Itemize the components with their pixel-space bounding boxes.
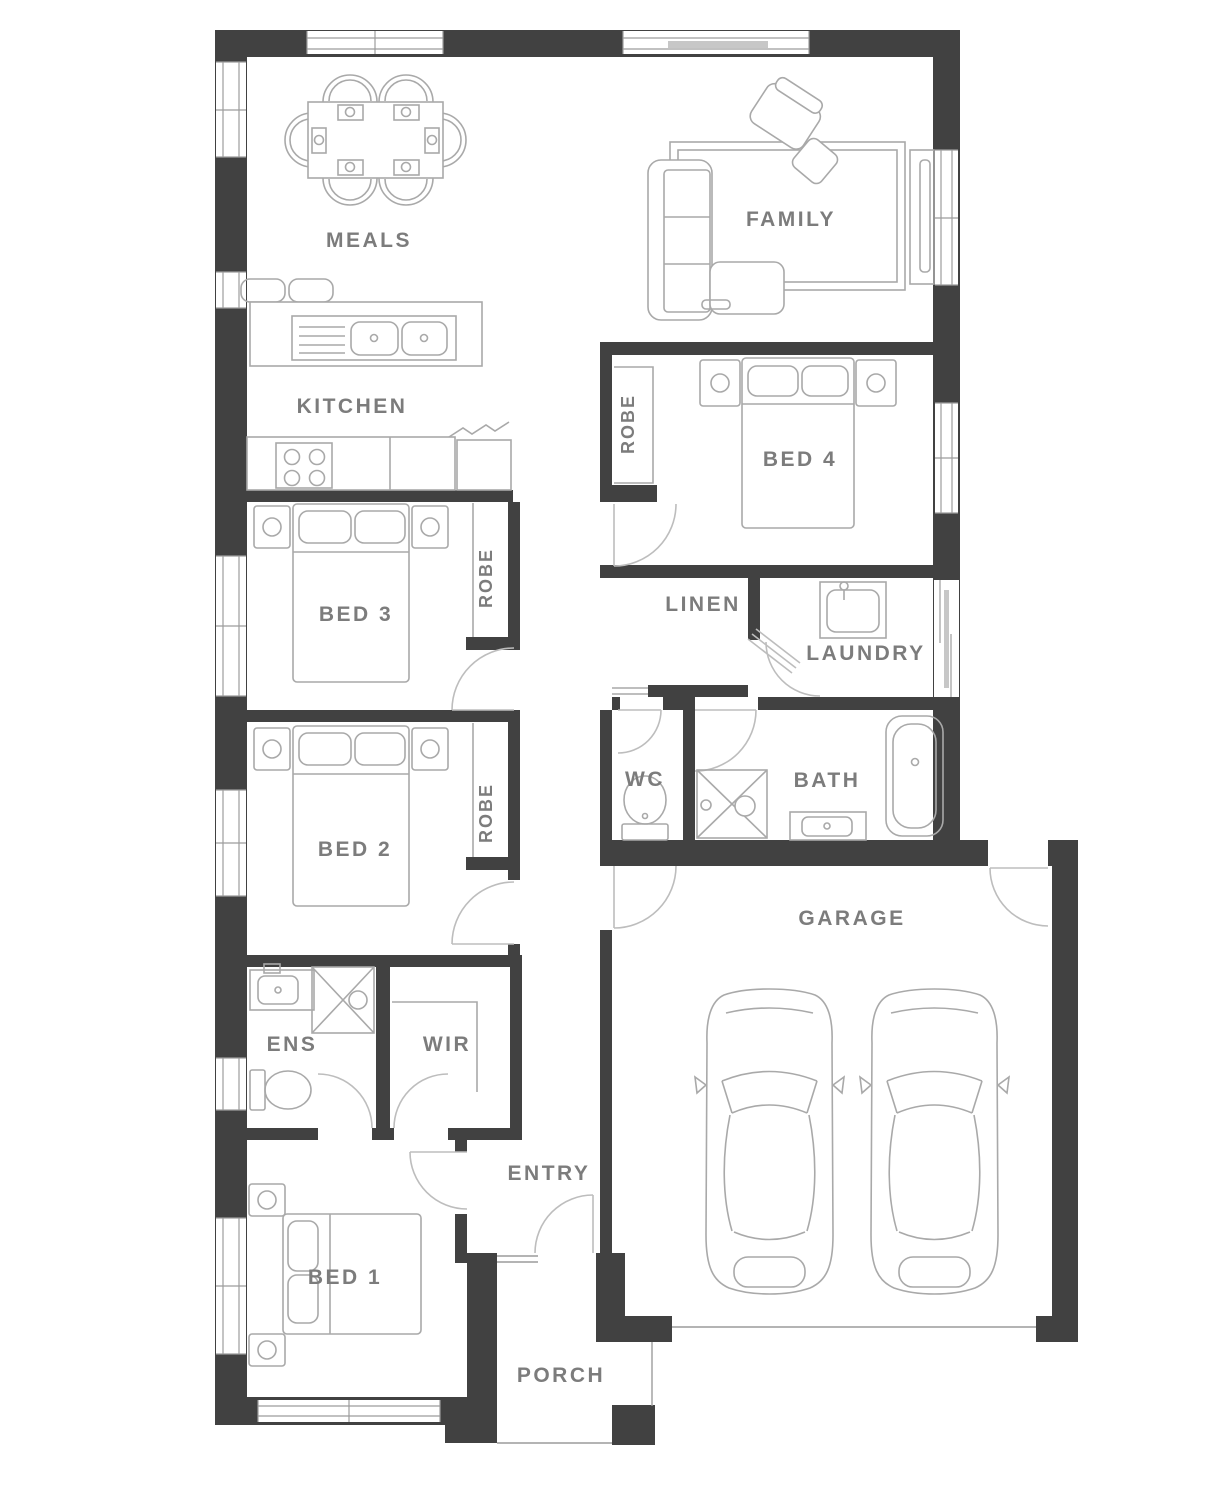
bed4-furniture — [614, 358, 896, 528]
bedside-table — [254, 728, 290, 770]
vanity — [790, 812, 866, 840]
window-top-family — [623, 31, 809, 54]
door-bed1 — [410, 1152, 467, 1209]
wall-robe2-bottom — [466, 857, 520, 870]
wall-bed1-top-a — [247, 1128, 318, 1140]
wall-bed3-bed2 — [215, 710, 520, 722]
door-bath — [695, 710, 756, 771]
bed — [742, 358, 854, 528]
door-wir — [394, 1074, 448, 1128]
ens-toilet — [250, 1070, 311, 1110]
wall-hall-left-c — [508, 944, 520, 967]
window-meals — [216, 62, 246, 157]
car-icon — [695, 989, 844, 1294]
bedside-table — [254, 506, 290, 548]
door-front — [497, 1195, 593, 1262]
sliding-door-laundry — [934, 580, 959, 697]
stool — [241, 279, 285, 302]
wall-linen-bottom — [648, 685, 748, 697]
sofa — [648, 160, 784, 320]
wall-garage-bl-h — [596, 1316, 672, 1342]
wall-ens-wir-div — [376, 967, 390, 1128]
room-label-wc: WC — [625, 768, 665, 791]
room-label-bed4: BED 4 — [763, 448, 837, 471]
door-wc — [618, 710, 661, 753]
door-garage-internal — [614, 866, 676, 928]
room-label-ens: ENS — [267, 1033, 318, 1056]
bedside-table — [412, 728, 448, 770]
room-label-bath: BATH — [794, 769, 861, 792]
room-label-meals: MEALS — [326, 229, 412, 252]
window-family-side — [935, 150, 958, 285]
door-bed3 — [452, 648, 514, 710]
bedside-table — [700, 360, 740, 406]
shower — [697, 770, 767, 838]
pantry-scribble — [449, 422, 509, 437]
door-bed4 — [614, 504, 676, 566]
floor-plan-svg: MEALS FAMILY KITCHEN ROBE BED 4 BED 3 RO… — [0, 0, 1220, 1500]
wall-kitchen-bed3 — [215, 490, 513, 502]
ens-vanity — [250, 964, 314, 1010]
bedside-table — [412, 506, 448, 548]
window-bed1-bottom — [258, 1400, 440, 1422]
wall-hall-left-b — [508, 712, 520, 880]
room-label-robe-bed3: ROBE — [476, 548, 496, 608]
room-label-porch: PORCH — [517, 1364, 605, 1387]
wall-hall-left-a — [508, 502, 520, 648]
wall-hall-right-b — [600, 710, 612, 862]
window-bed3 — [216, 556, 246, 696]
wall-bed1-right-b — [455, 1214, 467, 1263]
wall-bed1-top-b — [372, 1128, 394, 1140]
window-bed1-side — [216, 1218, 246, 1354]
room-label-wir: WIR — [423, 1033, 471, 1056]
wall-hall-right-c — [600, 930, 612, 1253]
wall-hall-right-a — [600, 342, 612, 502]
dining-chair — [379, 178, 433, 205]
wall-laundry-bath — [758, 697, 933, 710]
bedside-table — [856, 360, 896, 406]
floor-plan-page: MEALS FAMILY KITCHEN ROBE BED 4 BED 3 RO… — [0, 0, 1220, 1500]
room-label-linen: LINEN — [665, 593, 741, 616]
room-label-kitchen: KITCHEN — [297, 395, 408, 418]
wall-garage-br — [1036, 1316, 1078, 1342]
kitchen-island — [241, 279, 482, 366]
wall-bed1-right-a — [455, 1140, 467, 1152]
wall-bed4-linen — [600, 565, 960, 578]
dining-setting — [285, 75, 466, 205]
room-label-entry: ENTRY — [508, 1162, 591, 1185]
wall-bed2-ens — [215, 955, 522, 967]
tv-unit — [910, 150, 934, 284]
bed — [293, 726, 409, 906]
bench — [247, 437, 455, 490]
window-bed2 — [216, 790, 246, 896]
door-garage-rear — [990, 868, 1048, 926]
room-label-garage: GARAGE — [798, 907, 905, 930]
family-room-furniture — [648, 73, 934, 320]
room-label-laundry: LAUNDRY — [806, 642, 925, 665]
room-label-bed2: BED 2 — [318, 838, 392, 861]
door-ens — [318, 1074, 372, 1128]
wall-wc-stub — [612, 697, 620, 710]
dining-chair — [323, 178, 377, 205]
window-top-meals — [307, 31, 443, 54]
wall-wir-right — [510, 967, 522, 1140]
car-icon — [860, 989, 1009, 1294]
wall-porch-bl — [445, 1397, 497, 1443]
stool — [289, 279, 333, 302]
room-label-family: FAMILY — [746, 208, 836, 231]
wall-left — [215, 30, 247, 1425]
wall-garage-top-a — [600, 840, 988, 866]
window-ens — [216, 1058, 246, 1110]
laundry-tub — [820, 582, 886, 638]
bed3-furniture — [254, 503, 473, 682]
door-bed2 — [452, 882, 514, 944]
dining-table — [308, 102, 443, 178]
room-label-bed1: BED 1 — [308, 1266, 382, 1289]
dining-chair — [323, 75, 377, 102]
fridge-space — [457, 440, 511, 490]
porch-pillar — [612, 1405, 655, 1445]
window-bed4-side — [935, 403, 958, 513]
bed2-furniture — [254, 723, 473, 906]
room-label-robe-bed4: ROBE — [618, 394, 638, 454]
bedside-table — [249, 1184, 285, 1216]
wall-garage-right — [1052, 840, 1078, 1342]
wall-family-bed4 — [612, 342, 933, 355]
bed — [293, 504, 409, 682]
bedside-table — [249, 1334, 285, 1366]
dining-chair — [379, 75, 433, 102]
room-label-bed3: BED 3 — [319, 603, 393, 626]
room-label-robe-bed2: ROBE — [476, 783, 496, 843]
kitchen-bench — [247, 422, 511, 490]
linen-shelves — [612, 688, 648, 694]
ens-shower — [312, 967, 374, 1033]
wall-wc-bath-top — [663, 697, 695, 710]
